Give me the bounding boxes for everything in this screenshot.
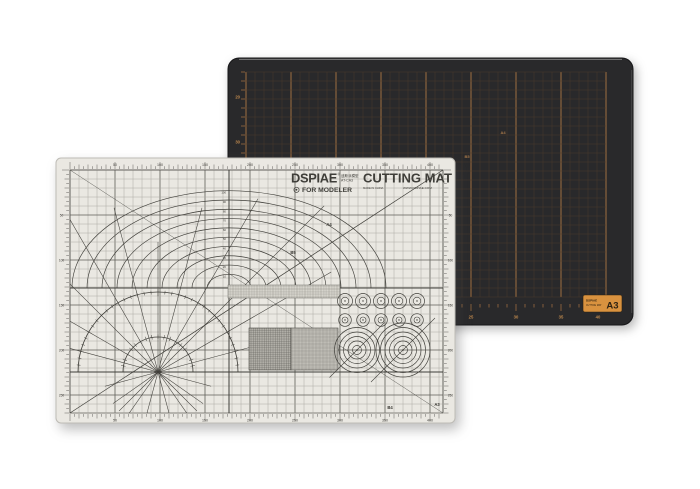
label: 25 bbox=[469, 315, 474, 320]
made-in-text: MADE IN CHINA bbox=[363, 186, 384, 190]
label: 50 bbox=[223, 237, 227, 241]
label: B5 bbox=[464, 154, 470, 159]
label: 30 bbox=[235, 140, 240, 145]
size-badge-brand: DSPIAE bbox=[586, 299, 597, 303]
label: 10 bbox=[223, 274, 227, 278]
brand-logo-dot-icon bbox=[296, 189, 298, 191]
label: 30 bbox=[514, 315, 519, 320]
label: 350 bbox=[382, 163, 388, 167]
label: 400 bbox=[427, 163, 433, 167]
label: 40 bbox=[596, 315, 601, 320]
label: 100 bbox=[157, 163, 163, 167]
label: 20 bbox=[223, 265, 227, 269]
size-badge-product: CUTTING MAT bbox=[586, 304, 602, 307]
label: 100 bbox=[221, 191, 226, 195]
size-badge-size: A3 bbox=[606, 301, 618, 312]
label: 150 bbox=[448, 304, 454, 308]
website-text: WWW.DSPIAE.COM bbox=[403, 186, 432, 190]
brand-text: DSPIAE bbox=[291, 172, 337, 186]
label: 80 bbox=[223, 209, 227, 213]
white-cutting-mat: 5010015020025030035040050100150200250300… bbox=[0, 158, 455, 425]
label: A3 bbox=[434, 402, 440, 407]
label: A4 bbox=[326, 222, 332, 227]
label: 250 bbox=[59, 394, 65, 398]
brand-cn-text: 迪斯派模型 bbox=[341, 173, 359, 178]
hatch-square-coarse bbox=[249, 328, 291, 370]
label: 100 bbox=[448, 259, 454, 263]
label: 200 bbox=[247, 419, 253, 423]
label: 50 bbox=[449, 214, 453, 218]
label: 250 bbox=[448, 394, 454, 398]
label: 60 bbox=[223, 228, 227, 232]
label: 100 bbox=[59, 259, 65, 263]
label: 50 bbox=[113, 163, 117, 167]
label: 50 bbox=[60, 214, 64, 218]
tagline-text: FOR MODELER bbox=[302, 187, 352, 194]
model-code-text: AT-CA3 bbox=[341, 178, 353, 182]
cutting-mats-photo: 203025303540A4B5 DSPIAE CUTTING MAT A3 5… bbox=[0, 0, 700, 489]
size-badge: DSPIAE CUTTING MAT A3 bbox=[583, 295, 622, 312]
label: 35 bbox=[559, 315, 564, 320]
label: 150 bbox=[59, 304, 65, 308]
label: 200 bbox=[59, 349, 65, 353]
label: 200 bbox=[247, 163, 253, 167]
label: 300 bbox=[337, 419, 343, 423]
label: 200 bbox=[448, 349, 454, 353]
fine-grid-strip bbox=[228, 285, 340, 298]
label: A4 bbox=[500, 130, 506, 135]
label: 90 bbox=[223, 200, 227, 204]
label: 150 bbox=[202, 419, 208, 423]
label: 300 bbox=[337, 163, 343, 167]
label: 400 bbox=[427, 419, 433, 423]
label: 250 bbox=[292, 163, 298, 167]
label: 50 bbox=[113, 419, 117, 423]
label: B4 bbox=[387, 405, 393, 410]
label: 100 bbox=[157, 419, 163, 423]
label: 70 bbox=[223, 219, 227, 223]
product-name-text: CUTTING MAT bbox=[363, 172, 452, 186]
hatch-square-fine bbox=[291, 328, 338, 370]
label: 40 bbox=[223, 246, 227, 250]
label: 150 bbox=[202, 163, 208, 167]
label: 350 bbox=[382, 419, 388, 423]
label: 20 bbox=[235, 95, 240, 100]
label: 250 bbox=[292, 419, 298, 423]
product-photo-scene: 203025303540A4B5 DSPIAE CUTTING MAT A3 5… bbox=[0, 0, 700, 489]
label: B5 bbox=[290, 250, 296, 255]
